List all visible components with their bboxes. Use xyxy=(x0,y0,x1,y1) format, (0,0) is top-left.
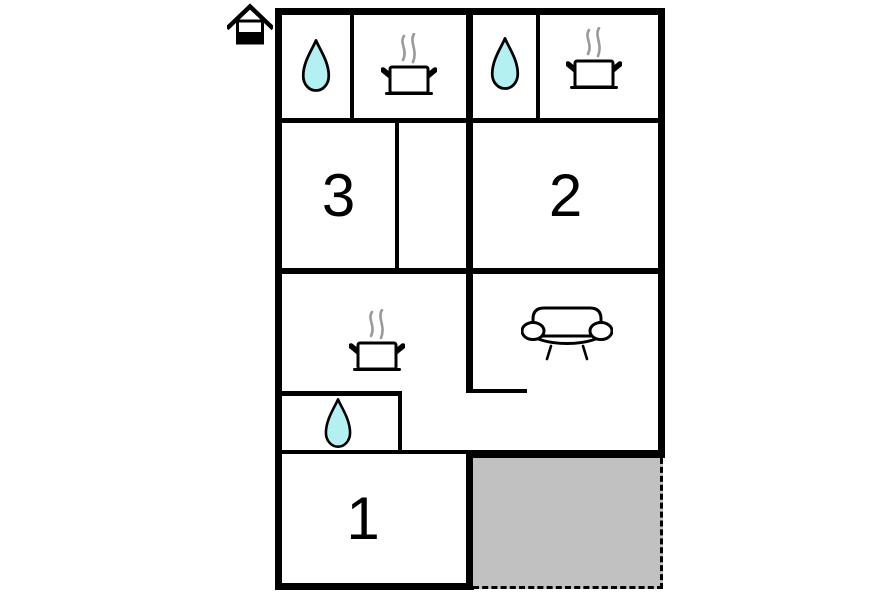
water-drop-icon xyxy=(300,38,332,93)
wall-terrace-top xyxy=(466,450,663,458)
wall-bath-top xyxy=(282,391,402,396)
wall-room1-right xyxy=(466,450,473,590)
terrace-area xyxy=(473,458,663,589)
water-drop-icon xyxy=(323,397,353,449)
wall-outer-top xyxy=(275,8,665,15)
wall-toprow-divider-2 xyxy=(536,15,540,118)
wall-living-stub xyxy=(466,389,527,393)
cooking-pot-icon xyxy=(349,309,405,373)
wall-corridor xyxy=(395,123,399,268)
house-icon xyxy=(227,3,273,45)
wall-center-vertical xyxy=(466,15,473,393)
wall-outer-right xyxy=(658,8,665,458)
cooking-pot-icon xyxy=(381,33,437,97)
wall-row2-bottom xyxy=(282,268,658,274)
wall-toprow-divider-1 xyxy=(350,15,354,118)
cooking-pot-icon xyxy=(566,27,622,91)
wall-outer-bottom xyxy=(275,583,474,590)
water-drop-icon xyxy=(489,36,521,91)
room-2-label: 2 xyxy=(473,123,658,268)
sofa-icon xyxy=(521,304,613,362)
wall-outer-left xyxy=(275,8,282,590)
room-1-label: 1 xyxy=(282,454,444,583)
wall-bath-right xyxy=(398,391,402,454)
room-3-label: 3 xyxy=(282,123,395,268)
floor-plan: 3 2 1 xyxy=(0,0,896,597)
